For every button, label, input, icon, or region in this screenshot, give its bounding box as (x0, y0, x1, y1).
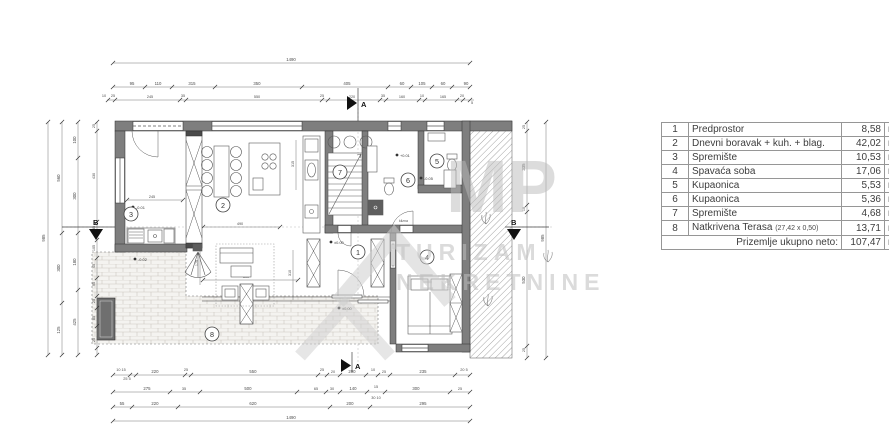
room-name: Predprostor (689, 123, 842, 137)
dim-label: 25 (522, 125, 526, 129)
area-unit: m² (885, 207, 889, 221)
table-row: 2 Dnevni boravak + kuh. + blag. 42,02 m² (662, 137, 889, 151)
dim-label: 550 (254, 95, 260, 99)
dim-label: 35 (182, 387, 186, 391)
room-area: 42,02 (842, 137, 885, 151)
dim-label: 1490 (286, 415, 296, 420)
room-number: 3 (662, 151, 689, 165)
floor-plan-page: 1490 95 110 315 350 405 60 105 60 90 10 … (0, 0, 889, 439)
dim-label: 95 (92, 282, 96, 286)
floor-plan: 1490 95 110 315 350 405 60 105 60 90 10 … (0, 0, 660, 439)
room-label-2: 2 (216, 198, 230, 212)
dim-label: 60 (400, 81, 405, 86)
dim-label: 90 (464, 81, 469, 86)
dim-label: 315 (188, 81, 196, 86)
section-b-label: B (93, 218, 99, 227)
dim-label: 620 (249, 401, 257, 406)
dim-label: 490 (237, 222, 243, 226)
dining-set (202, 146, 242, 197)
kitchen-island (249, 143, 280, 195)
dim-label: 10 (102, 94, 106, 98)
room-label-8: 8 (205, 327, 219, 341)
dim-label: 25 (320, 94, 324, 98)
room-number: 8 (662, 221, 689, 236)
svg-text:5: 5 (435, 157, 439, 166)
dim-label: 25 (92, 124, 96, 128)
plant-icon (544, 250, 553, 262)
room-number: 1 (662, 123, 689, 137)
dim-label: 140 (349, 386, 357, 391)
area-unit: m² (885, 137, 889, 151)
room-area: 10,53 (842, 151, 885, 165)
dim-label: 200 (346, 401, 354, 406)
dim-label: 295 (419, 401, 427, 406)
table-row: 5 Kupaonica 5,53 m² (662, 179, 889, 193)
dim-label: 1490 (286, 57, 296, 62)
svg-text:8: 8 (210, 330, 214, 339)
room-name: Dnevni boravak + kuh. + blag. (689, 137, 842, 151)
kitchenette (127, 228, 175, 244)
dim-label: 180 (72, 258, 77, 266)
x-post (307, 239, 320, 287)
dim-label: 65 (314, 387, 318, 391)
dim-label: 25 (92, 338, 96, 342)
sliding-door-label: klizna (399, 219, 408, 223)
dim-label: 85 (92, 316, 96, 320)
room-number: 2 (662, 137, 689, 151)
table-row: 3 Spremište 10,53 m² (662, 151, 889, 165)
area-unit: m² (885, 123, 889, 137)
dim-label: 275 (143, 386, 151, 391)
dim-label: 300 (72, 192, 77, 200)
room-name: Kupaonica (689, 179, 842, 193)
dim-label: 310 (288, 270, 292, 276)
table-total-row: Prizemlje ukupno neto: 107,47 m² (662, 236, 889, 250)
area-unit: m² (885, 151, 889, 165)
svg-text:3: 3 (129, 210, 133, 219)
dim-label: 30 (330, 387, 334, 391)
watermark-line1: TURIZAM (396, 239, 541, 265)
section-a-label: A (361, 100, 367, 109)
room-number: 4 (662, 165, 689, 179)
svg-text:2: 2 (221, 201, 225, 210)
level-label: -0.05 (424, 176, 433, 181)
dim-label: 105 (92, 245, 96, 251)
dim-label: 25 (522, 348, 526, 352)
dim-label: 560 (56, 174, 61, 182)
room-area: 13,71 (842, 221, 885, 236)
room-label-3: 3 (124, 207, 138, 221)
room-name: Spremište (689, 151, 842, 165)
dim-label: 300 (412, 386, 420, 391)
dim-label: 15 (374, 385, 378, 389)
room-area: 8,58 (842, 123, 885, 137)
svg-text:6: 6 (406, 176, 410, 185)
dim-label: 245 (149, 195, 155, 199)
dim-label: 25 (458, 387, 462, 391)
room-label-7: 7 (333, 165, 347, 179)
dim-label: 315 (291, 161, 295, 167)
table-row: 4 Spavaća soba 17,06 m² (662, 165, 889, 179)
room-area: 5,36 (842, 193, 885, 207)
dim-label: 220 (151, 401, 159, 406)
table-row: 6 Kupaonica 5,36 m² (662, 193, 889, 207)
watermark-letters: MP (446, 145, 557, 228)
dim-label: 25 (184, 368, 188, 372)
x-post (240, 284, 253, 324)
kitchen-counter (303, 136, 320, 233)
table-row: 1 Predprostor 8,58 m² (662, 123, 889, 137)
dim-label: 25 5 (123, 377, 130, 381)
room-area: 17,06 (842, 165, 885, 179)
level-label: -0.01 (136, 205, 145, 210)
level-label: -0.02 (138, 257, 147, 262)
bathroom-6 (367, 146, 394, 215)
level-label: ±0.00 (334, 240, 345, 245)
dim-label: 25 (382, 370, 386, 374)
dim-label: 20 5 (460, 368, 467, 372)
dim-label: 55 (120, 401, 125, 406)
dim-label: 300 (56, 264, 61, 272)
dim-label: 5 (471, 101, 473, 105)
dim-label: 125 (56, 326, 61, 334)
stairs (328, 153, 362, 215)
total-label: Prizemlje ukupno neto: (662, 236, 842, 250)
dim-label: 100 (72, 136, 77, 144)
dim-label: 235 (419, 369, 427, 374)
room-number: 5 (662, 179, 689, 193)
dim-label: 20 (460, 94, 464, 98)
area-unit: m² (885, 179, 889, 193)
room-label-5: 5 (430, 154, 444, 168)
dim-label: 35 (181, 94, 185, 98)
dim-label: 105 (418, 81, 426, 86)
dim-label: 45 (92, 264, 96, 268)
dim-label: 245 (147, 95, 153, 99)
room-area: 4,68 (842, 207, 885, 221)
dim-label: 220 (151, 369, 159, 374)
table-row: 8 Natkrivena Terasa (27,42 x 0,50) 13,71… (662, 221, 889, 236)
room-name: Spavaća soba (689, 165, 842, 179)
room-name-note: (27,42 x 0,50) (775, 225, 818, 232)
dim-label: 25 (320, 368, 324, 372)
room-area: 5,53 (842, 179, 885, 193)
area-unit: m² (885, 193, 889, 207)
room-number: 6 (662, 193, 689, 207)
room-name: Kupaonica (689, 193, 842, 207)
cooktop-icon (344, 136, 356, 148)
dim-label: 10 15 (116, 368, 126, 372)
svg-text:7: 7 (338, 168, 342, 177)
dim-label: 60 (441, 81, 446, 86)
dim-label: 110 (155, 81, 162, 86)
dim-label: 425 (72, 318, 77, 326)
dim-label: 20 (331, 370, 335, 374)
room-name: Spremište (689, 207, 842, 221)
dim-label: 25 (92, 299, 96, 303)
fireplace (185, 244, 211, 278)
dim-label: 10 (420, 94, 424, 98)
room-name: Natkrivena Terasa (27,42 x 0,50) (689, 221, 842, 236)
dim-label: 25 (111, 94, 115, 98)
section-a-label: A (355, 362, 361, 371)
dim-label: 550 (249, 369, 257, 374)
dim-label: 430 (92, 173, 96, 179)
area-unit: m² (885, 221, 889, 236)
dim-label: 95 (130, 81, 135, 86)
level-label: +0.01 (400, 153, 410, 158)
dim-label: 30 10 (371, 396, 381, 400)
dim-label: 10 (371, 368, 375, 372)
area-table: 1 Predprostor 8,58 m² 2 Dnevni boravak +… (661, 122, 885, 250)
dim-label: 165 (440, 95, 446, 99)
room-label-1: 1 (351, 245, 365, 259)
room-label-6: 6 (401, 173, 415, 187)
area-unit: m² (885, 236, 889, 250)
dim-label: 35 (381, 94, 385, 98)
total-area: 107,47 (842, 236, 885, 250)
dim-label: 500 (244, 386, 252, 391)
table-row: 7 Spremište 4,68 m² (662, 207, 889, 221)
svg-text:1: 1 (356, 248, 360, 257)
dim-label: 985 (41, 234, 46, 242)
dim-label: 405 (343, 81, 351, 86)
dim-label: 350 (253, 81, 261, 86)
room-number: 7 (662, 207, 689, 221)
section-b-arrow-icon (89, 229, 103, 240)
area-unit: m² (885, 165, 889, 179)
watermark-line2: NEKRETNINE (396, 269, 606, 295)
dim-label: 160 (399, 95, 405, 99)
